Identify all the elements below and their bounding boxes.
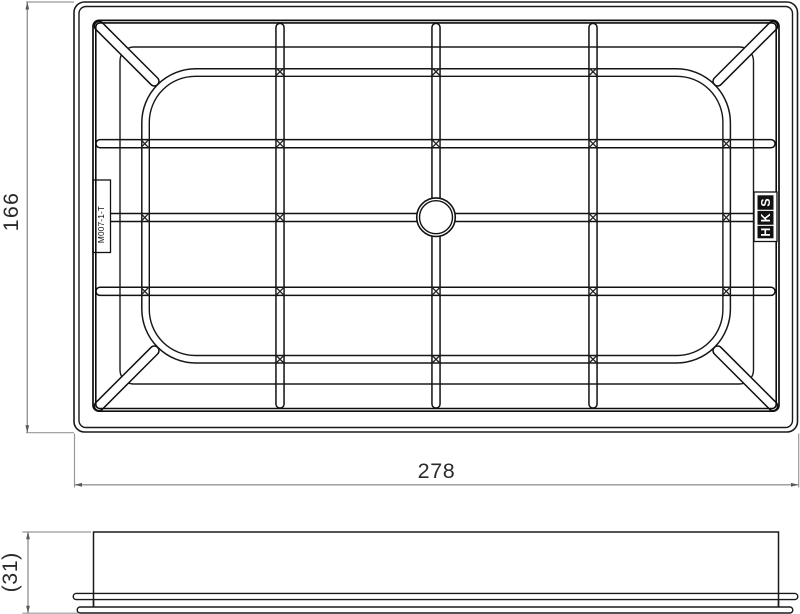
svg-text:K: K bbox=[759, 213, 773, 222]
svg-text:278: 278 bbox=[418, 459, 456, 483]
svg-text:S: S bbox=[759, 198, 773, 206]
svg-text:166: 166 bbox=[0, 192, 23, 231]
svg-text:M007-1-T: M007-1-T bbox=[96, 206, 106, 243]
svg-text:H: H bbox=[759, 228, 773, 237]
svg-text:(31): (31) bbox=[0, 552, 22, 592]
